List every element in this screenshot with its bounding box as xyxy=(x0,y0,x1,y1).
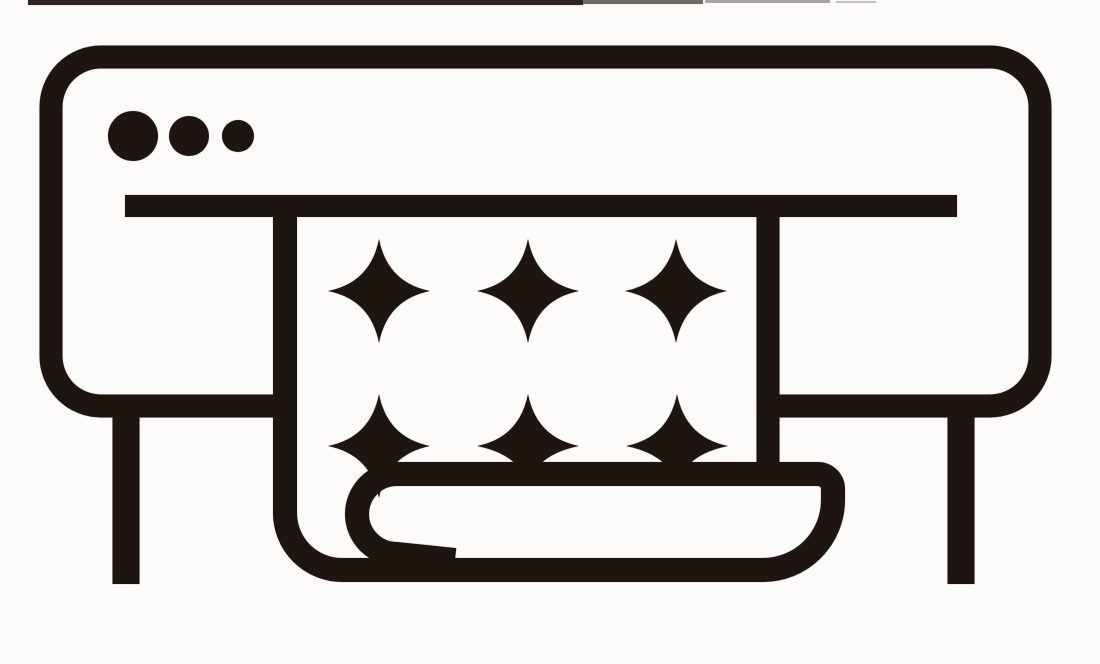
scan-artifact-mark xyxy=(836,1,876,3)
control-dots xyxy=(108,111,254,161)
control-dot-icon xyxy=(169,116,209,156)
control-dot-icon xyxy=(222,120,254,152)
sparkle-icon xyxy=(477,239,579,343)
control-dot-icon xyxy=(108,111,158,161)
scan-artifact-mark xyxy=(583,0,703,4)
sparkle-icon xyxy=(625,239,727,343)
printer-body-outline xyxy=(51,57,1040,406)
sparkles xyxy=(328,239,728,498)
paper-sheet-outline xyxy=(285,206,833,570)
scan-artifact xyxy=(28,0,876,5)
scan-artifact-mark xyxy=(28,0,583,5)
printer-icon-canvas xyxy=(0,0,1100,664)
scan-artifact-mark xyxy=(705,0,830,3)
printer-icon xyxy=(0,0,1100,664)
sparkle-icon xyxy=(328,239,430,343)
